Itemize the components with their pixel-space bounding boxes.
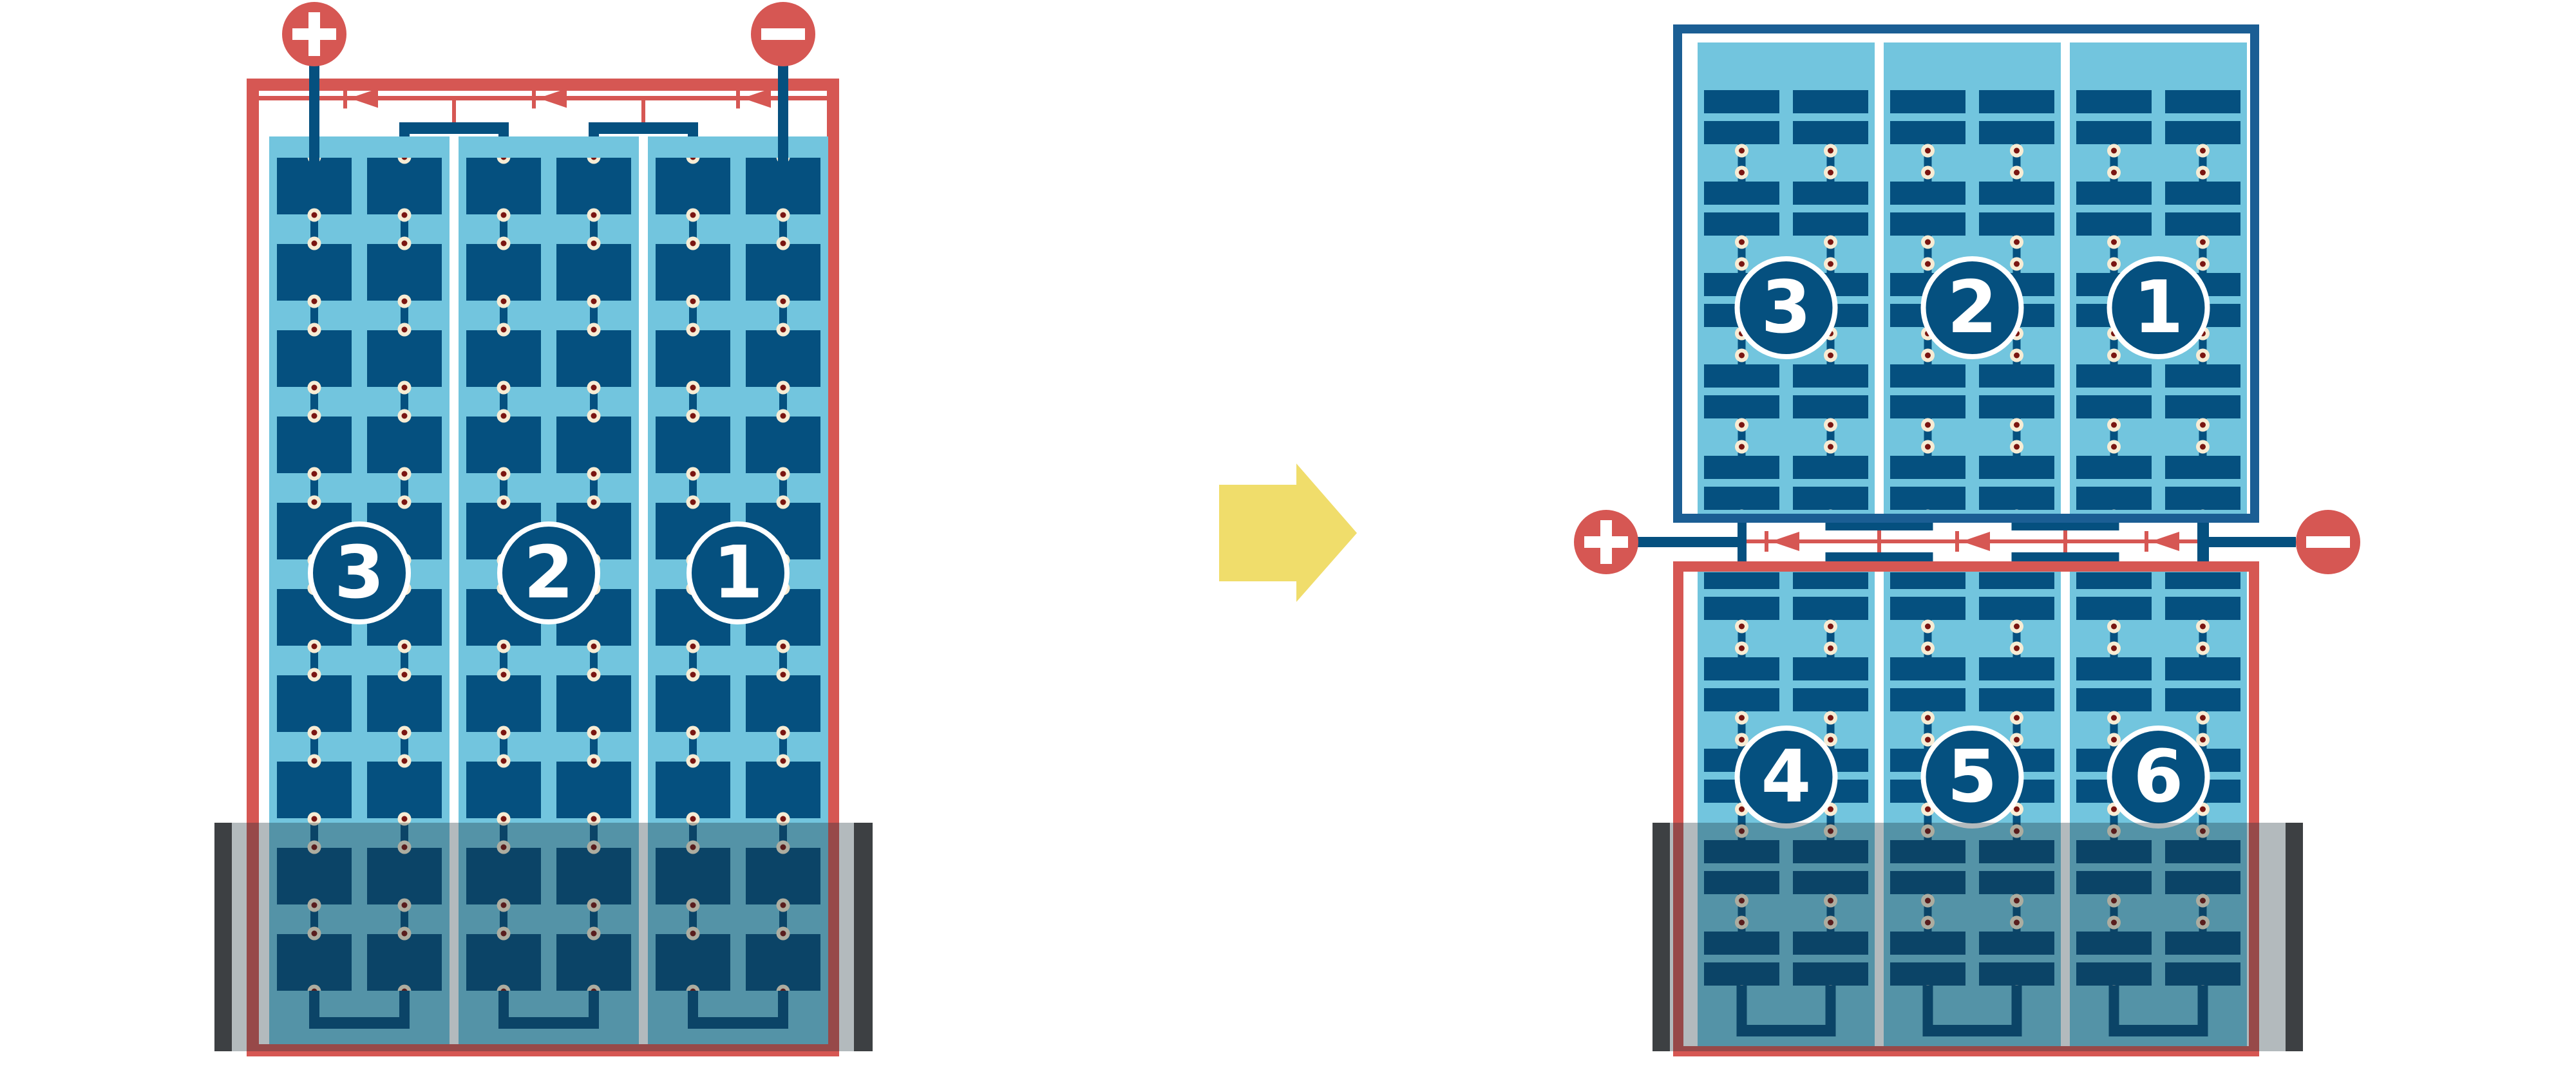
left-bypass-diode-bus [259, 88, 827, 124]
diode-tap-wire [641, 100, 645, 124]
diode-tap-wire [452, 100, 456, 124]
junction-right-riser [2197, 523, 2209, 561]
module-badge-label: 6 [2134, 735, 2184, 819]
module-badge-label: 1 [2134, 266, 2184, 350]
negative-terminal-icon [751, 2, 815, 66]
transform-arrow-icon [1219, 464, 1357, 602]
right-shade-overlay [1653, 823, 2303, 1051]
module-badge-3: 3 [1738, 259, 1835, 357]
module-badge-label: 3 [1761, 266, 1812, 350]
module-badge-label: 5 [1947, 735, 1998, 819]
positive-terminal-icon [282, 2, 346, 66]
junction-upper-tab [1826, 523, 1933, 530]
shade-bar-icon [1653, 823, 1670, 1051]
module-badge-4: 4 [1738, 728, 1835, 826]
junction-left-riser [1738, 523, 1747, 561]
left-shade-overlay [214, 823, 873, 1051]
module-badge-1: 1 [2110, 259, 2208, 357]
positive-terminal-icon [1574, 510, 1638, 574]
module-badge-label: 2 [1947, 266, 1998, 350]
shade-bar-icon [854, 823, 873, 1051]
diagram-canvas: 3 2 1 [0, 0, 2576, 1068]
junction-upper-tab [2012, 523, 2119, 530]
module-badge-label: 3 [334, 531, 384, 615]
shade-bar-icon [214, 823, 232, 1051]
module-badge-label: 1 [713, 531, 763, 615]
junction-lower-tab [2012, 552, 2119, 561]
right-top-panel: 3 2 1 [1678, 29, 2255, 518]
module-badge-6: 6 [2110, 728, 2208, 826]
junction-lower-tab [1826, 552, 1933, 561]
module-badge-5: 5 [1924, 728, 2022, 826]
module-badge-3: 3 [310, 524, 408, 622]
negative-lead-wire [2209, 537, 2296, 547]
module-badge-2: 2 [1924, 259, 2022, 357]
module-badge-2: 2 [500, 524, 598, 622]
shade-bar-icon [2286, 823, 2303, 1051]
module-badge-1: 1 [689, 524, 787, 622]
negative-terminal-icon [2296, 510, 2360, 574]
solar-wiring-diagram: 3 2 1 [0, 0, 2576, 1068]
module-badge-label: 2 [524, 531, 574, 615]
module-badge-label: 4 [1761, 735, 1812, 819]
